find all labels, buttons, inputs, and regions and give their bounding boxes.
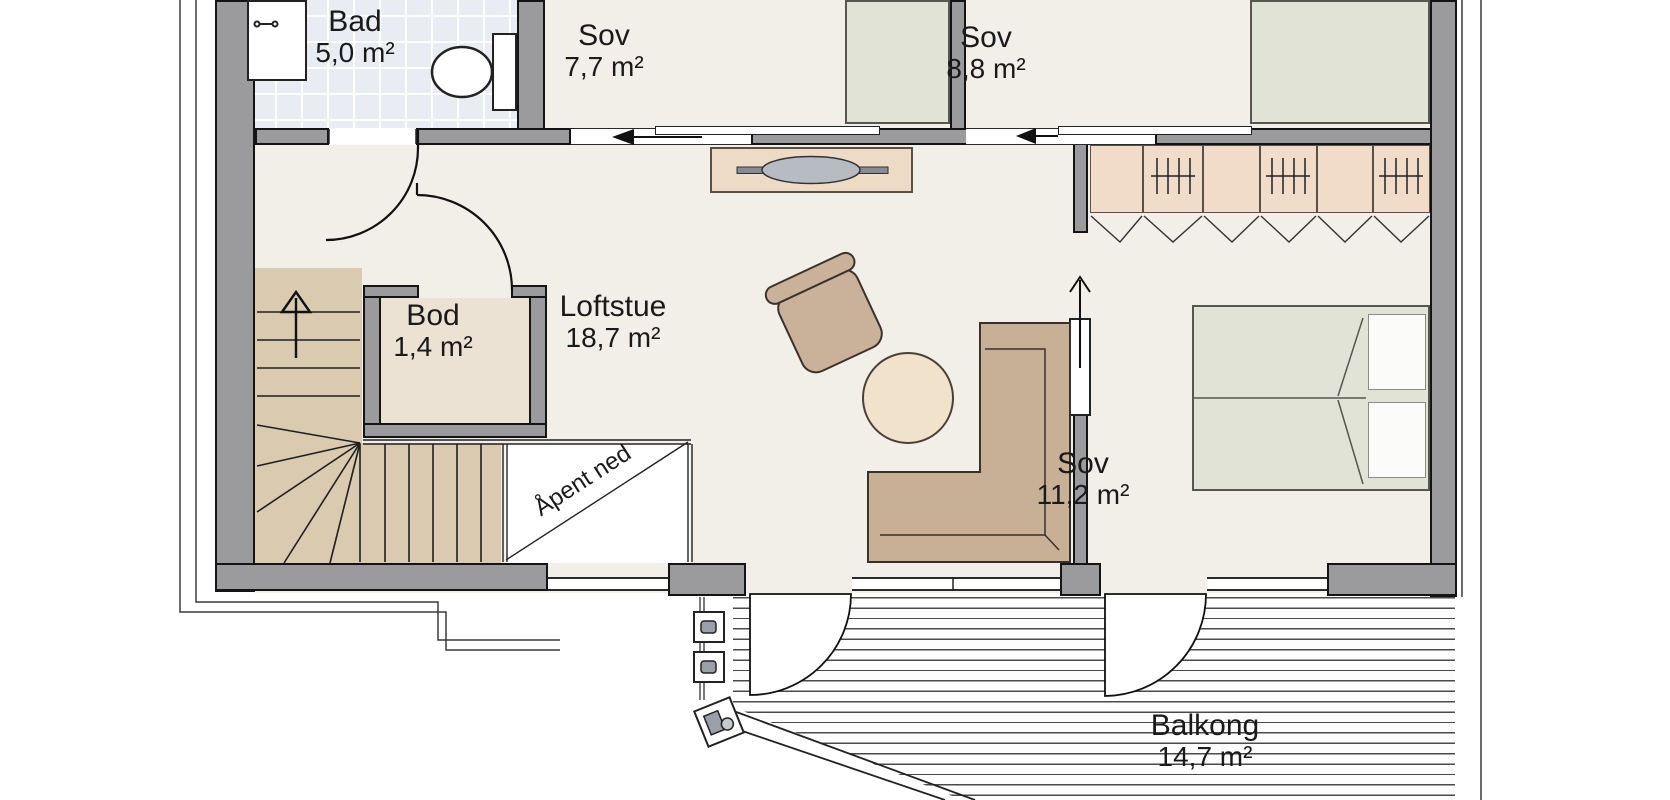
round-table [862, 352, 954, 444]
room-label-sov77: Sov 7,7 m² [564, 20, 643, 81]
dresser-loftstue [710, 147, 913, 193]
pocket-door-leaf-sov112 [1069, 318, 1091, 416]
wardrobe-section-5 [1317, 145, 1373, 213]
room-area: 8,8 m² [946, 54, 1025, 84]
room-area: 1,4 m² [393, 332, 472, 362]
wardrobe-section-4 [1260, 145, 1317, 213]
wardrobe-section-2 [1143, 145, 1203, 213]
room-label-bod: Bod 1,4 m² [393, 300, 472, 361]
room-name: Loftstue [560, 291, 667, 323]
wall-balcony-pier1 [668, 563, 746, 596]
room-name: Bod [393, 300, 472, 332]
room-label-bad: Bad 5,0 m² [315, 6, 394, 67]
room-label-balkong: Balkong 14,7 m² [1151, 710, 1259, 771]
bed-sov77 [845, 0, 950, 124]
wall-top-seg2 [416, 128, 571, 145]
room-name: Balkong [1151, 710, 1259, 742]
floorplan: Bad 5,0 m² Sov 7,7 m² Sov 8,8 m² Bod 1,4… [0, 0, 1670, 800]
room-name: Sov [946, 22, 1025, 54]
wall-top-seg1 [255, 128, 329, 145]
sliding-door-leaf-sov88 [1058, 126, 1252, 135]
wall-pocket-upper [1073, 143, 1088, 233]
balcony-decking [733, 597, 1455, 800]
stairs-upper-run [255, 268, 362, 563]
sliding-door-leaf-sov77 [655, 126, 880, 135]
room-area: 18,7 m² [560, 323, 667, 353]
room-label-sov88: Sov 8,8 m² [946, 22, 1025, 83]
wall-bod-left [363, 285, 381, 438]
wardrobe-section-3 [1203, 145, 1260, 213]
bed-sov88 [1250, 0, 1430, 124]
wall-exterior-left [215, 0, 255, 592]
stairs-lower-run [362, 443, 501, 563]
window-loftstue [852, 577, 1060, 591]
wall-bod-top-left [363, 285, 419, 298]
balcony-edge [700, 597, 704, 700]
wall-bottom-left [215, 563, 548, 591]
room-area: 11,2 m² [1037, 480, 1130, 510]
room-area: 5,0 m² [315, 38, 394, 68]
bathroom-cabinet [247, 0, 307, 81]
wardrobe-section-1 [1090, 145, 1143, 213]
room-name: Sov [1037, 448, 1130, 480]
facade-outline-right [1462, 0, 1481, 800]
balcony-fixture-1 [694, 612, 724, 642]
window-sov112 [1207, 577, 1327, 591]
wall-bottom-right-corner [1327, 563, 1457, 596]
room-label-loftstue: Loftstue 18,7 m² [560, 291, 667, 352]
room-name: Bad [315, 6, 394, 38]
wall-exterior-right [1430, 0, 1457, 597]
wardrobe-section-6 [1373, 145, 1430, 213]
wall-bad-right [517, 0, 545, 145]
room-label-sov112: Sov 11,2 m² [1037, 448, 1130, 509]
wall-balcony-pier2 [1060, 563, 1101, 596]
wall-bod-right [529, 285, 547, 438]
wall-bod-bottom [363, 423, 547, 438]
balcony-fixture-2 [694, 652, 724, 682]
room-area: 14,7 m² [1151, 742, 1259, 772]
window-under-stairs [548, 577, 668, 591]
wall-bod-top-right [511, 285, 547, 298]
pillow-1 [1368, 314, 1426, 390]
door-opening-bad [329, 128, 416, 145]
room-area: 7,7 m² [564, 52, 643, 82]
pillow-2 [1368, 402, 1426, 478]
room-name: Sov [564, 20, 643, 52]
